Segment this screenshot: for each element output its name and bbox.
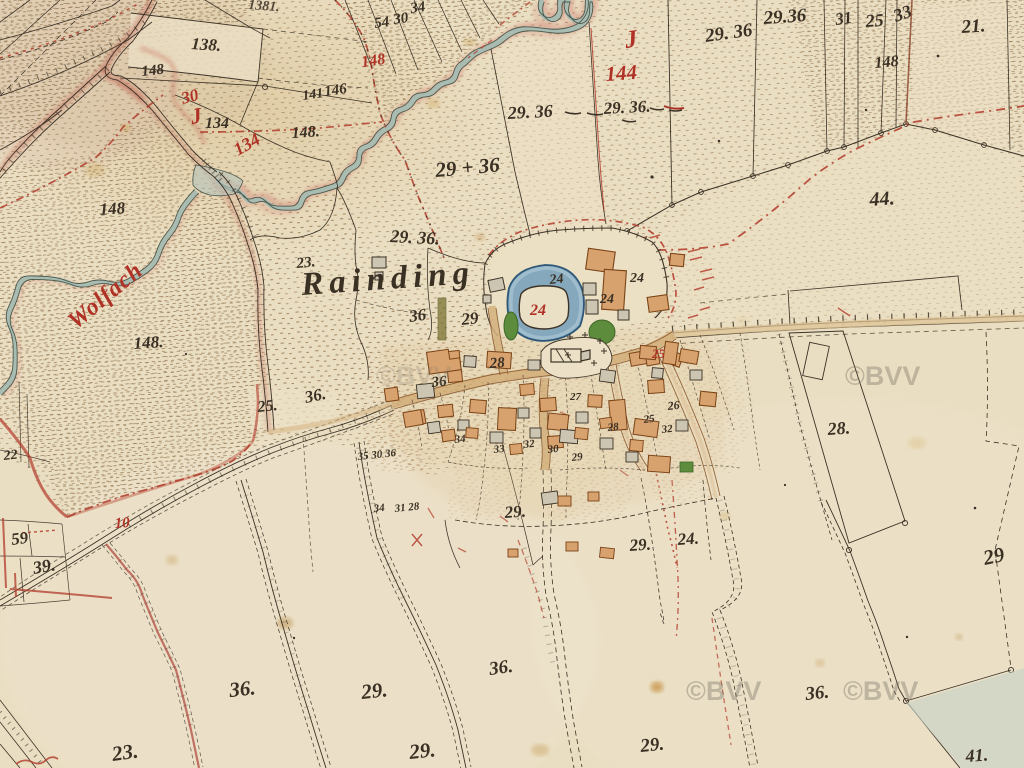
svg-text:26: 26: [666, 398, 680, 413]
svg-text:24: 24: [548, 272, 564, 288]
svg-text:138.: 138.: [191, 34, 222, 55]
svg-text:29.36: 29.36: [762, 5, 808, 29]
svg-text:28: 28: [488, 355, 506, 372]
svg-text:29: 29: [459, 308, 479, 329]
svg-text:30: 30: [391, 10, 410, 28]
svg-text:41.: 41.: [964, 744, 989, 766]
svg-text:34: 34: [408, 0, 427, 17]
svg-text:148: 148: [141, 62, 166, 80]
svg-text:34: 34: [453, 433, 467, 446]
svg-text:22: 22: [2, 448, 18, 464]
svg-text:21.: 21.: [960, 15, 986, 38]
svg-text:33: 33: [492, 443, 506, 456]
svg-text:148: 148: [874, 53, 899, 72]
svg-text:32: 32: [522, 438, 536, 451]
svg-text:1381.: 1381.: [248, 0, 280, 15]
svg-text:54: 54: [373, 14, 391, 32]
svg-text:148: 148: [360, 51, 386, 71]
svg-text:39.: 39.: [30, 554, 57, 578]
svg-text:25: 25: [642, 413, 656, 426]
svg-text:25.: 25.: [256, 397, 279, 416]
svg-text:©BVV: ©BVV: [843, 676, 918, 706]
svg-text:134: 134: [205, 115, 229, 132]
svg-text:59: 59: [10, 528, 30, 549]
svg-text:29.: 29.: [628, 535, 652, 556]
svg-text:29.: 29.: [407, 737, 437, 764]
svg-text:44.: 44.: [868, 187, 895, 211]
svg-text:27: 27: [569, 391, 582, 403]
svg-text:148: 148: [99, 198, 126, 219]
svg-text:29.: 29.: [359, 677, 389, 704]
svg-text:141: 141: [301, 86, 324, 104]
svg-text:31: 31: [833, 8, 853, 29]
svg-text:148.: 148.: [133, 332, 164, 353]
svg-text:36: 36: [407, 305, 428, 326]
svg-text:25: 25: [651, 346, 666, 361]
svg-text:148.: 148.: [291, 123, 320, 142]
svg-text:29. 36: 29. 36: [506, 101, 553, 123]
svg-text:28.: 28.: [826, 417, 851, 439]
svg-text:30: 30: [546, 443, 560, 456]
svg-text:146: 146: [323, 81, 348, 100]
svg-text:32: 32: [660, 423, 674, 436]
svg-text:©BVV: ©BVV: [845, 361, 920, 391]
svg-text:34: 34: [372, 502, 386, 515]
svg-text:144: 144: [605, 60, 638, 86]
svg-text:36.: 36.: [227, 675, 257, 702]
svg-text:29.: 29.: [503, 502, 527, 523]
svg-text:24: 24: [629, 271, 644, 286]
svg-text:36.: 36.: [487, 656, 514, 680]
svg-text:10: 10: [114, 515, 131, 532]
svg-text:25: 25: [864, 10, 884, 31]
svg-text:©BVV: ©BVV: [376, 361, 451, 391]
svg-text:©BVV: ©BVV: [686, 676, 761, 706]
svg-text:24: 24: [529, 302, 546, 319]
svg-text:36.: 36.: [803, 682, 830, 705]
svg-text:29. 36.: 29. 36.: [602, 97, 651, 118]
svg-text:29.: 29.: [638, 734, 665, 757]
svg-text:29. 36.: 29. 36.: [389, 226, 440, 249]
svg-text:24: 24: [599, 292, 614, 307]
svg-text:23.: 23.: [109, 739, 139, 767]
svg-text:29: 29: [570, 451, 584, 464]
svg-text:24.: 24.: [676, 529, 700, 550]
svg-text:28: 28: [606, 421, 620, 434]
